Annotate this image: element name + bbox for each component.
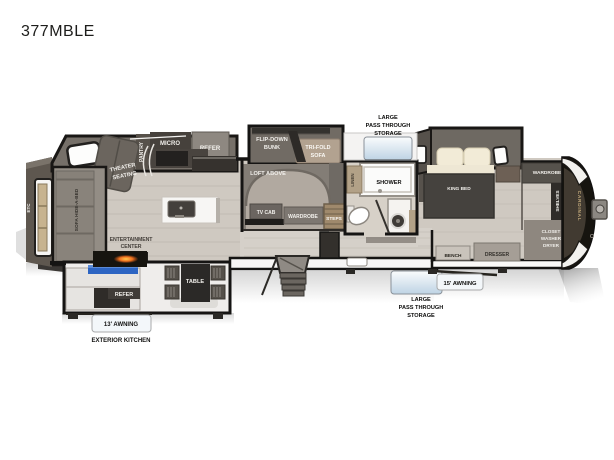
svg-text:KING BED: KING BED [447, 186, 471, 192]
svg-text:STORAGE: STORAGE [374, 131, 402, 137]
svg-text:13' AWNING: 13' AWNING [104, 322, 139, 328]
svg-text:TABLE: TABLE [186, 279, 204, 285]
svg-text:LOFT ABOVE: LOFT ABOVE [250, 171, 286, 177]
svg-text:WASHER: WASHER [541, 236, 562, 241]
svg-text:EXTERIOR KITCHEN: EXTERIOR KITCHEN [91, 338, 150, 344]
svg-text:FLIP-DOWN: FLIP-DOWN [256, 137, 288, 143]
svg-text:15' AWNING: 15' AWNING [443, 281, 477, 287]
svg-text:CENTER: CENTER [121, 244, 142, 250]
svg-text:BUNK: BUNK [264, 145, 280, 151]
svg-text:TRI-FOLD: TRI-FOLD [305, 145, 330, 151]
svg-text:SHOWER: SHOWER [376, 180, 401, 186]
svg-text:377MBLE: 377MBLE [21, 23, 95, 40]
svg-text:STORAGE: STORAGE [407, 313, 435, 319]
svg-text:DRYER: DRYER [543, 243, 560, 248]
svg-text:SOFA: SOFA [311, 153, 326, 159]
svg-text:STEPS: STEPS [326, 216, 343, 222]
svg-text:DRESSER: DRESSER [485, 252, 510, 258]
svg-text:REFER: REFER [115, 292, 133, 298]
svg-text:ENTERTAINMENT: ENTERTAINMENT [110, 237, 154, 243]
svg-text:PASS THROUGH: PASS THROUGH [366, 123, 411, 129]
svg-text:ETC: ETC [26, 203, 31, 213]
svg-text:LINEN: LINEN [350, 173, 355, 186]
svg-text:CLOSET: CLOSET [542, 229, 561, 234]
svg-text:SHELVES: SHELVES [555, 190, 560, 211]
svg-text:PASS THROUGH: PASS THROUGH [399, 305, 444, 311]
svg-text:WARDROBE: WARDROBE [288, 214, 318, 220]
svg-text:WARDROBE: WARDROBE [533, 170, 562, 176]
svg-text:LARGE: LARGE [378, 115, 398, 121]
svg-text:BENCH: BENCH [444, 253, 462, 259]
svg-text:CARDINAL: CARDINAL [576, 191, 582, 222]
svg-text:TV CAB: TV CAB [257, 210, 276, 216]
svg-text:MICRO: MICRO [160, 141, 180, 147]
svg-text:LARGE: LARGE [411, 297, 431, 303]
svg-text:SOFA HIDE-A-BED: SOFA HIDE-A-BED [74, 188, 80, 231]
